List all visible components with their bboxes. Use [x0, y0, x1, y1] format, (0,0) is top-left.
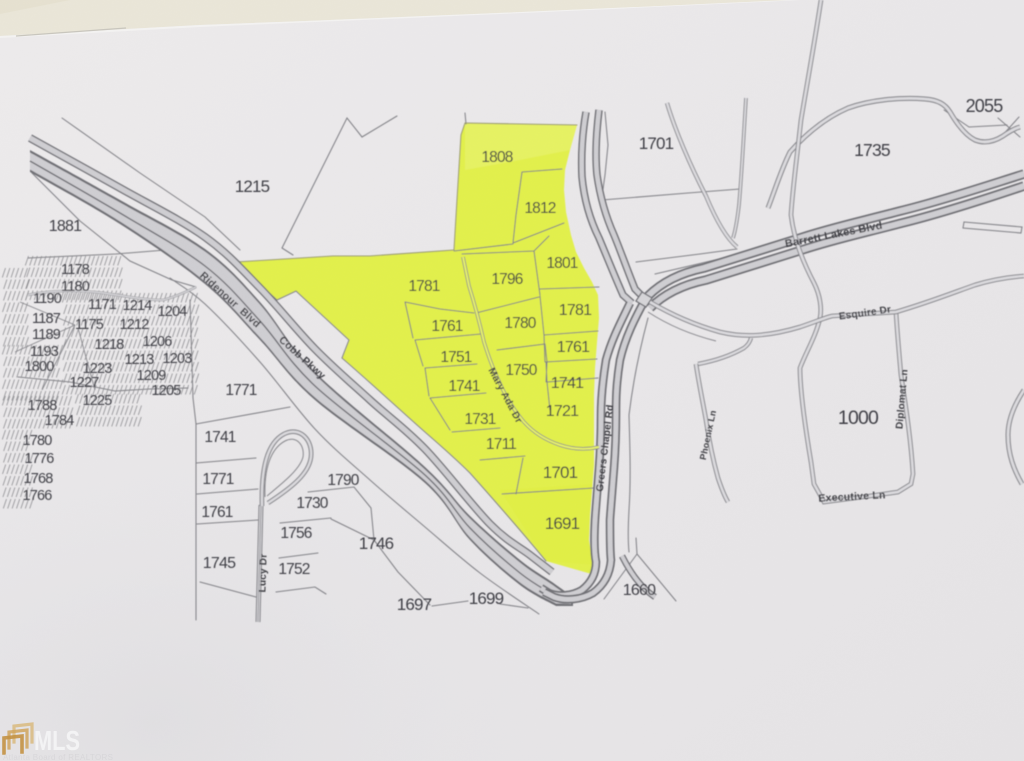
- svg-text:Atlanta Board of REALTORS: Atlanta Board of REALTORS: [3, 753, 113, 761]
- svg-text:MLS: MLS: [34, 725, 80, 756]
